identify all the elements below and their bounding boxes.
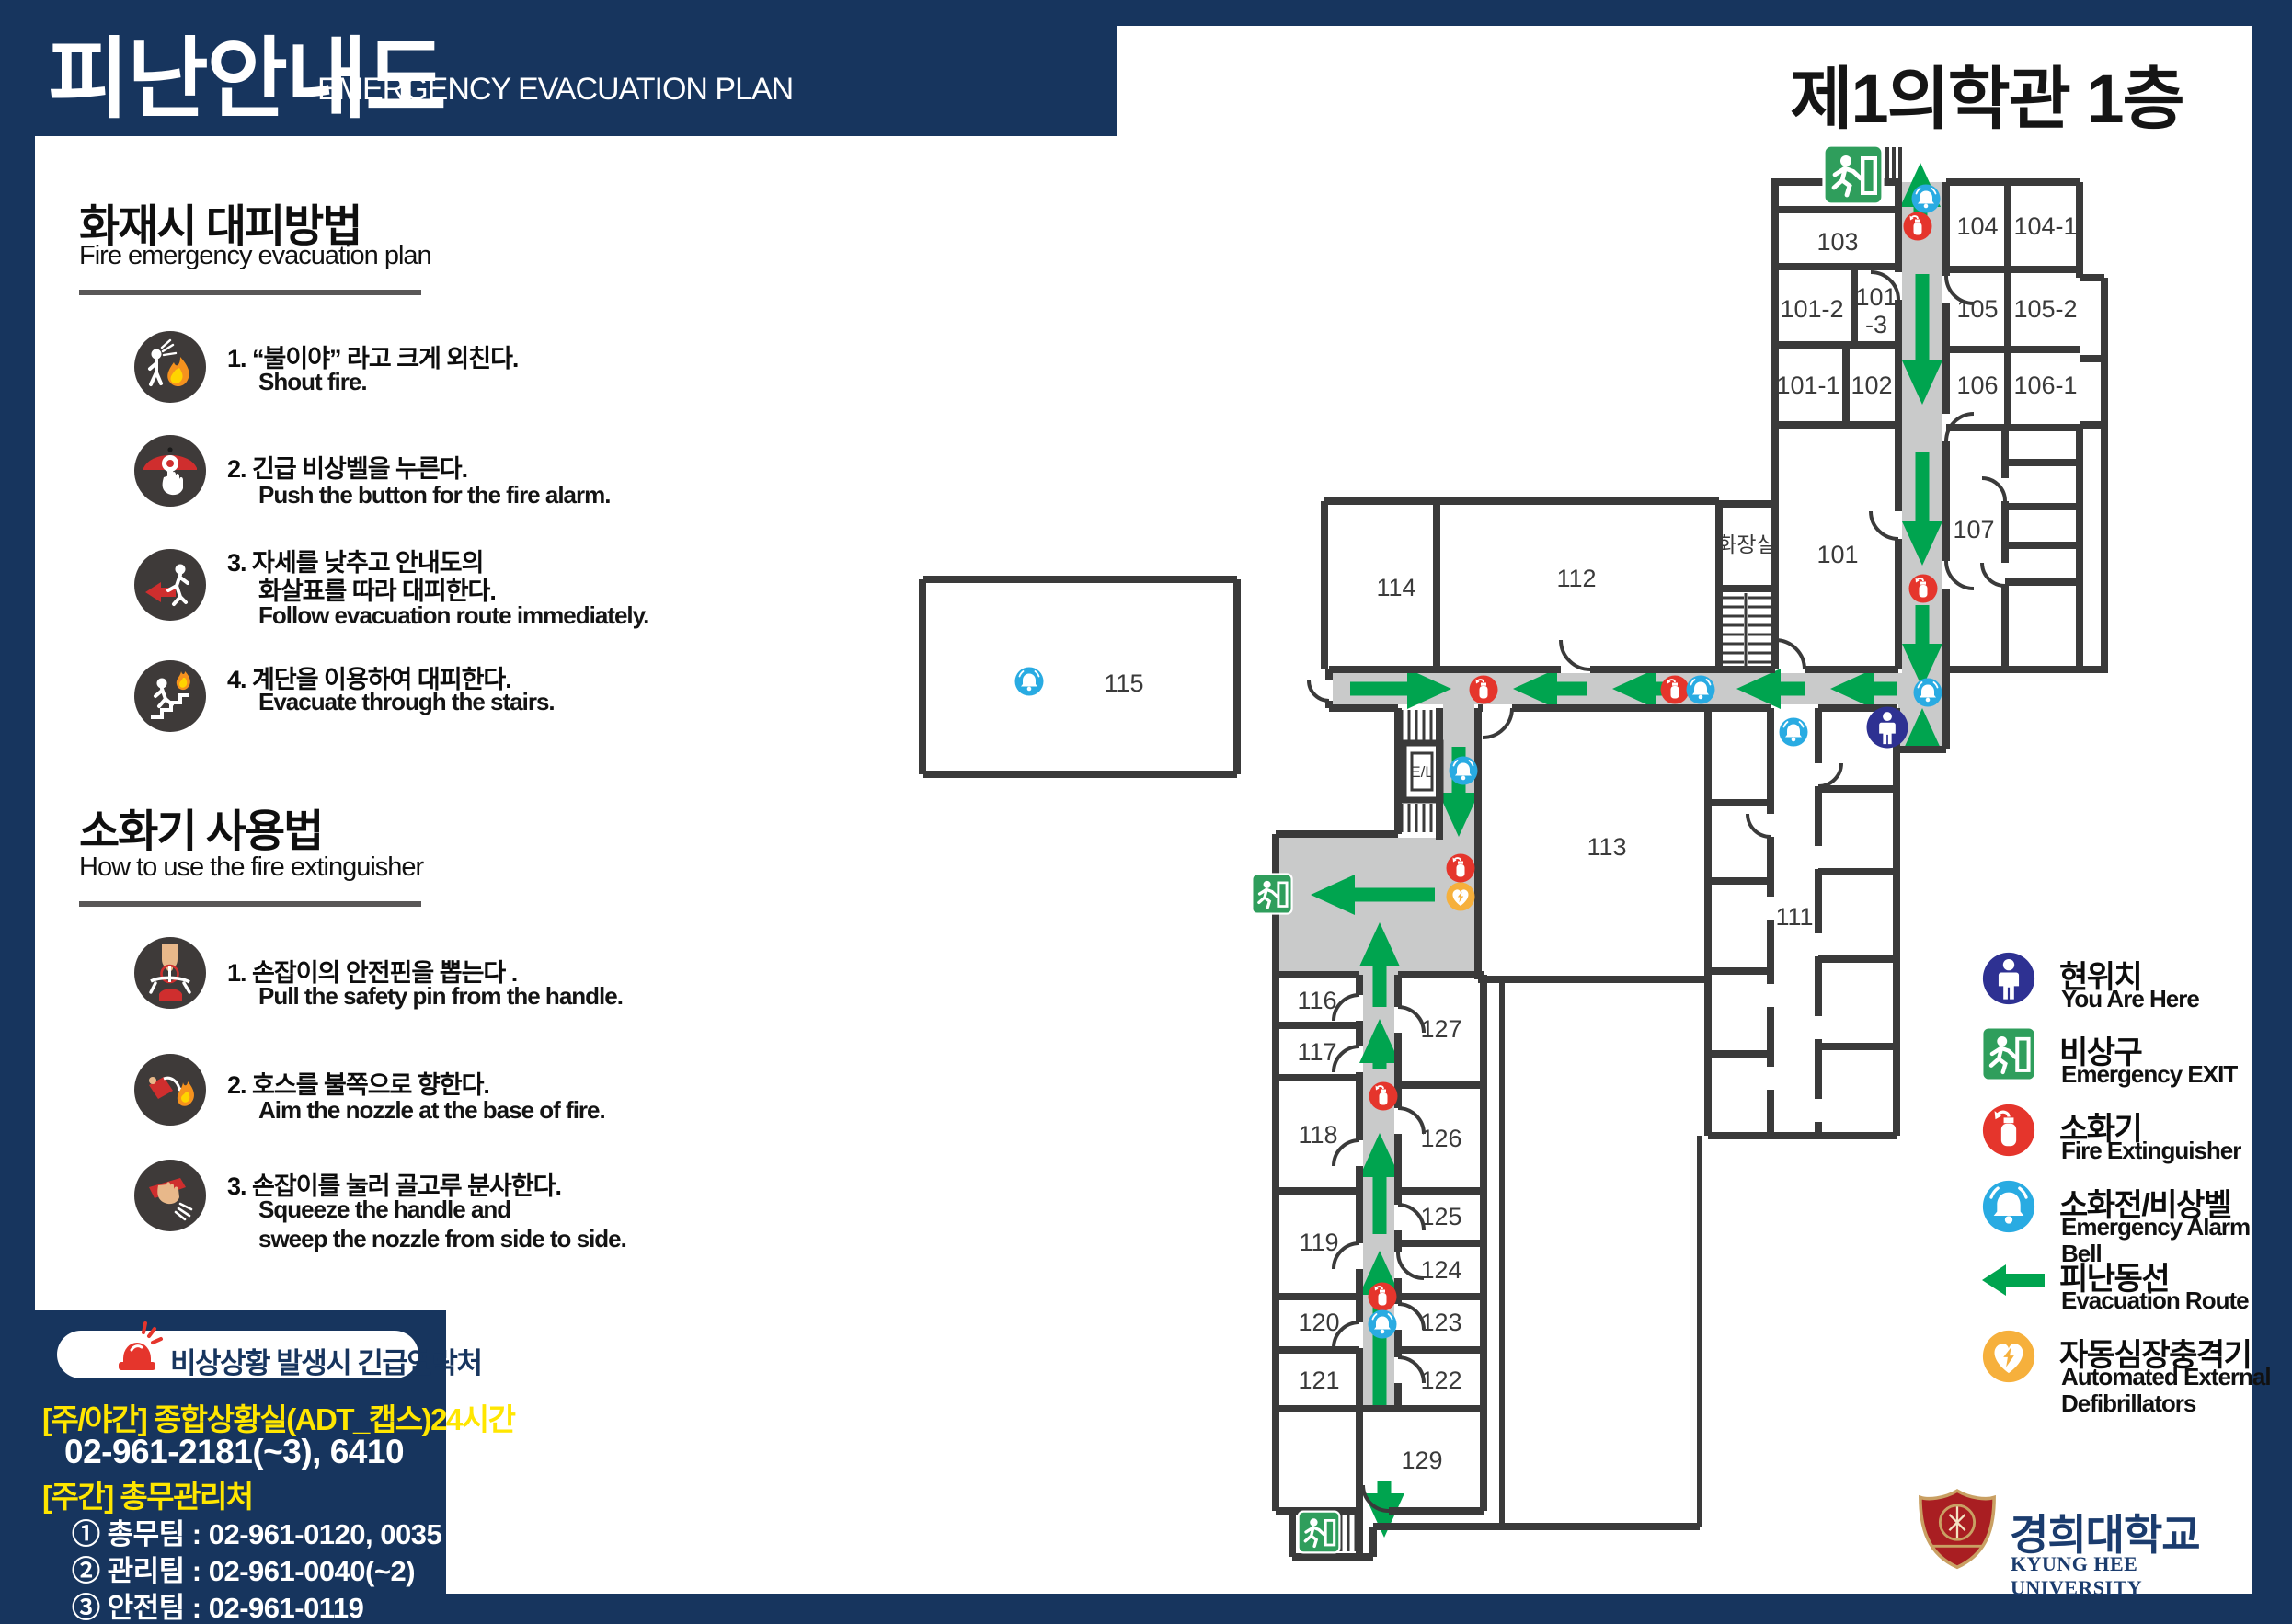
follow-route-icon [134,549,206,621]
push-alarm-icon [134,435,206,507]
fire-step-text-en: Shout fire. [258,368,367,396]
room-label: 123 [1420,1309,1461,1336]
room-label: 103 [1816,228,1858,256]
fire-extinguisher-icon [1982,1104,2035,1157]
university-name-en: KYUNG HEE UNIVERSITY [2011,1552,2250,1600]
aed-icon [1982,1330,2035,1383]
stairs-mid [1722,593,1771,667]
shout-fire-icon [134,331,206,403]
fire-extinguisher-icon [1904,212,1932,241]
aim-nozzle-icon [134,1054,206,1126]
room-label: -3 [1865,311,1887,338]
you-are-here-icon [1982,952,2035,1005]
room-label: 122 [1420,1367,1461,1394]
room-label: 102 [1851,372,1892,399]
room-label: 127 [1420,1015,1461,1043]
alarm-bell-icon [1687,676,1715,704]
fire-extinguisher-icon [1369,1082,1398,1111]
aed-icon [1447,883,1475,911]
fire-section-subtitle: Fire emergency evacuation plan [79,241,431,271]
walls-south-wing [1276,975,1700,1557]
fire-step-text-en: Evacuate through the stairs. [258,688,555,716]
alarm-bell-icon [1982,1180,2035,1233]
room-label: 113 [1587,833,1626,861]
legend-en: Fire Extinguisher [2061,1138,2273,1164]
stairs-south-exit [1341,1515,1356,1551]
legend-en: Emergency EXIT [2061,1061,2273,1088]
room-label: 105 [1956,295,1998,323]
legend-en: Automated External Defibrillators [2061,1364,2273,1417]
room-label: 화장실 [1717,532,1775,556]
room-label: E/L [1410,763,1434,781]
room-label: 118 [1298,1121,1337,1149]
room-label: 129 [1401,1447,1442,1474]
ext-step-text-en: Squeeze the handle and [258,1195,510,1224]
room-label: 104-1 [2013,212,2077,240]
contact-team: ① 총무팀 : 02-961-0120, 0035 [72,1511,441,1552]
ext-step-text-en: Aim the nozzle at the base of fire. [258,1096,605,1125]
walls-courtyard [1502,979,1700,1527]
emergency-exit-icon [1824,145,1883,204]
alarm-bell-icon [1912,185,1941,213]
room-label: 117 [1297,1038,1336,1066]
sidebar: 화재시 대피방법 Fire emergency evacuation plan … [35,136,446,1310]
room-label: 112 [1556,565,1596,592]
contact-pill-label: 비상상황 발생시 긴급연락처 [170,1340,481,1381]
room-label: 111 [1775,903,1813,931]
contact-line1-phone: 02-961-2181(~3), 6410 [64,1433,404,1471]
ext-section-title: 소화기 사용법 [79,795,322,859]
alarm-bell-icon [1450,757,1478,785]
squeeze-handle-icon [134,1160,206,1231]
fire-extinguisher-icon [1447,854,1475,883]
contact-line2-label: [주간] 총무관리처 [42,1472,253,1516]
room-label: 119 [1299,1229,1338,1256]
room-label: 101-2 [1780,295,1843,323]
legend-en: Evacuation Route [2061,1287,2273,1314]
room-label: 115 [1104,669,1143,697]
ext-section-subtitle: How to use the fire extinguisher [79,852,423,883]
pull-pin-icon [134,937,206,1009]
fire-extinguisher-icon [1909,575,1938,603]
room-label: 107 [1953,516,1994,543]
alarm-bell-icon [1015,668,1044,696]
alarm-bell-icon [1914,679,1942,707]
siren-icon [109,1312,166,1378]
divider [79,901,421,907]
evacuation-route-arrow [1978,1253,2048,1307]
room-label: 114 [1376,574,1415,601]
contact-team: ③ 안전팀 : 02-961-0119 [72,1584,363,1624]
page-title-en: EMERGENCY EVACUATION PLAN [317,72,793,108]
university-crest [1918,1488,1997,1578]
ext-step-text-en: sweep the nozzle from side to side. [258,1225,626,1253]
divider [79,290,421,295]
room-label: 104 [1956,212,1998,240]
ext-step-text-en: Pull the safety pin from the handle. [258,982,623,1011]
legend-en: You Are Here [2061,986,2273,1012]
room-label: 125 [1420,1203,1461,1230]
emergency-contact-panel: 비상상황 발생시 긴급연락처 [주/야간] 종합상황실(ADT_캡스)24시간 … [0,1310,446,1624]
room-label: 106-1 [2013,372,2077,399]
fire-extinguisher-icon [1470,676,1498,704]
stairs-evacuate-icon [134,660,206,732]
room-label: 101 [1855,283,1897,311]
room-label: 116 [1297,987,1336,1014]
room-label: 101 [1816,541,1858,568]
emergency-exit-icon [1252,874,1291,913]
evacuation-plan-poster: 103 104 104-1 101-2 101 -3 105 105-2 101… [0,0,2292,1624]
fire-step-text-en: Follow evacuation route immediately. [258,601,648,630]
room-label: 106 [1956,372,1998,399]
room-label: 124 [1420,1256,1461,1284]
alarm-bell-icon [1780,718,1808,747]
room-label: 120 [1298,1309,1339,1336]
header: 피난안내도 EMERGENCY EVACUATION PLAN [0,0,1117,136]
room-label: 121 [1298,1367,1339,1394]
fire-step-text: 2. 긴급 비상벨을 누른다. [227,449,467,485]
fire-step-text-en: Push the button for the fire alarm. [258,481,610,509]
you-are-here-icon [1867,707,1908,749]
room-label: 105-2 [2013,295,2077,323]
alarm-bell-icon [1369,1310,1397,1339]
fire-extinguisher-icon [1369,1283,1397,1311]
emergency-exit-icon [1982,1027,2035,1081]
fire-extinguisher-icon [1661,676,1690,704]
contact-team: ② 관리팀 : 02-961-0040(~2) [72,1548,415,1589]
room-label: 126 [1420,1125,1461,1152]
emergency-exit-icon [1299,1512,1340,1553]
room-label: 101-1 [1776,372,1839,399]
building-title: 제1의학관 1층 [1748,44,2226,132]
